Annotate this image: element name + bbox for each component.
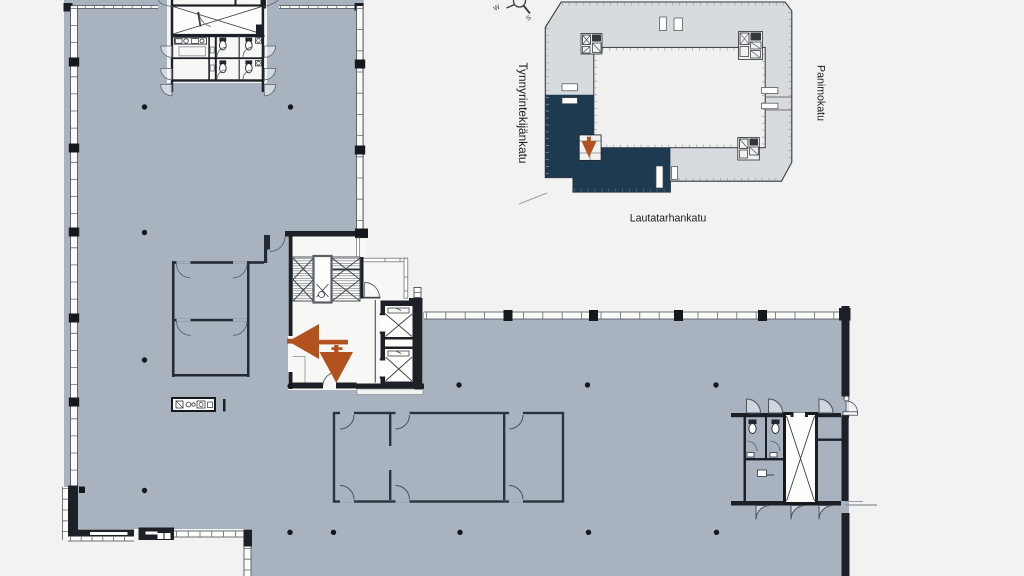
svg-text:Tynnyrintekijänkatu: Tynnyrintekijänkatu — [516, 63, 530, 164]
svg-text:Panimokatu: Panimokatu — [815, 65, 827, 121]
svg-text:Lautatarhankatu: Lautatarhankatu — [630, 213, 707, 225]
